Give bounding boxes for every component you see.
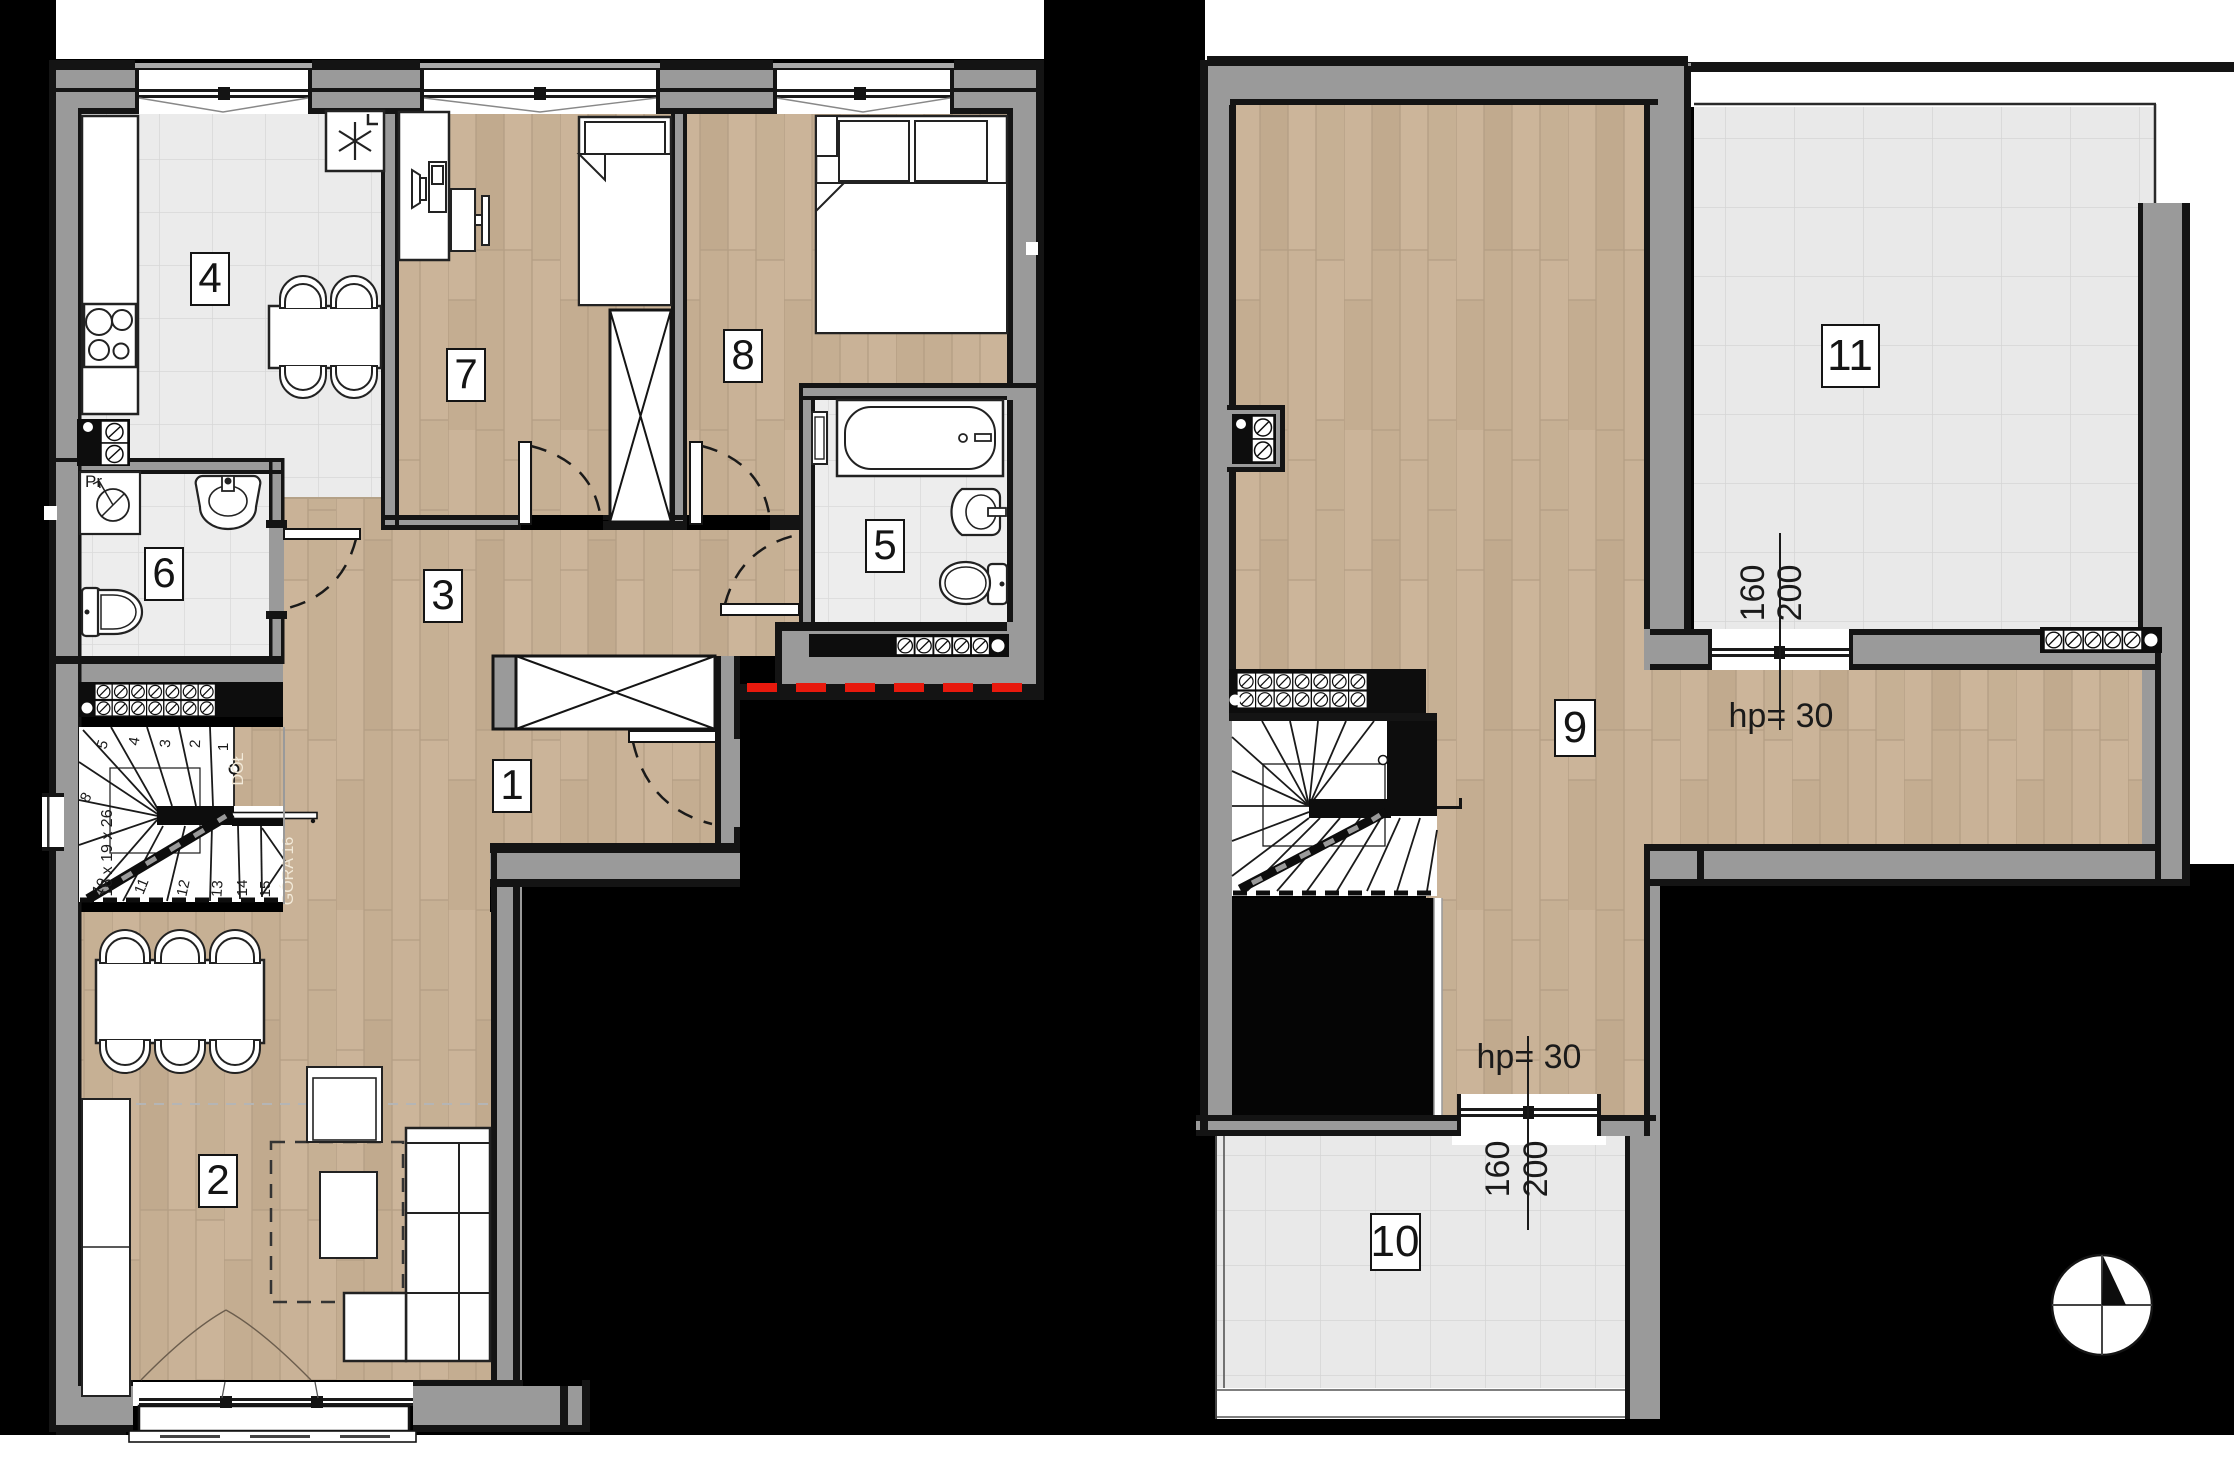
svg-text:15: 15 [257,881,274,898]
svg-text:2: 2 [206,1156,229,1203]
svg-text:160: 160 [1479,1141,1517,1198]
svg-text:7: 7 [454,350,477,397]
svg-text:13: 13 [208,880,226,898]
svg-text:3: 3 [431,571,454,618]
svg-text:10: 10 [1371,1217,1420,1266]
svg-text:1: 1 [500,761,523,808]
svg-text:4: 4 [198,254,221,301]
svg-text:1: 1 [215,743,232,751]
svg-text:16 x 19 x 26: 16 x 19 x 26 [99,809,116,896]
svg-text:200: 200 [1771,565,1809,622]
svg-text:8: 8 [731,331,754,378]
svg-text:14: 14 [234,880,251,897]
svg-text:200: 200 [1517,1141,1555,1198]
svg-text:9: 9 [1563,703,1587,752]
svg-text:5: 5 [873,521,896,568]
svg-text:3: 3 [157,738,175,748]
svg-text:2: 2 [187,739,204,748]
svg-text:11: 11 [1827,331,1873,380]
svg-text:160: 160 [1734,565,1772,622]
svg-text:Pr: Pr [85,472,102,491]
svg-text:6: 6 [152,549,175,596]
svg-text:hp= 30: hp= 30 [1729,697,1834,735]
svg-text:DÓŁ: DÓŁ [228,752,247,785]
svg-text:hp= 30: hp= 30 [1477,1038,1582,1076]
svg-text:12: 12 [174,878,194,898]
svg-text:GÓRA 16: GÓRA 16 [278,837,297,906]
